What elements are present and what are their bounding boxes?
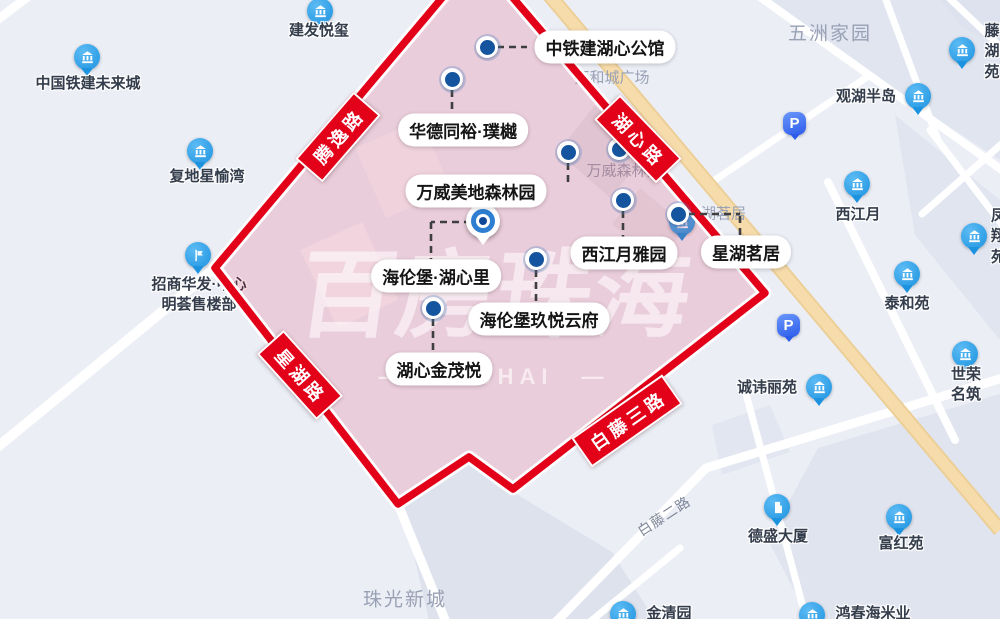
estate-label-6[interactable]: 海伦堡·湖心里 (371, 260, 501, 293)
estate-label-7[interactable]: 海伦堡玖悦云府 (469, 303, 610, 336)
estate-dot-2[interactable] (439, 66, 466, 93)
estate-dot-3[interactable] (555, 139, 582, 166)
estate-label-2[interactable]: 华德同裕·璞樾 (398, 114, 528, 147)
map-canvas[interactable]: 百房珠海 — ZHUHAI — 五洲家园珠光新城万和城广场万威森林园星湖茗居白藤… (0, 0, 1000, 619)
estate-dot-4[interactable] (610, 187, 637, 214)
estate-label-8[interactable]: 湖心金茂悦 (386, 353, 493, 386)
estate-dot-6[interactable] (523, 246, 550, 273)
selected-estate-marker[interactable] (466, 204, 500, 238)
estate-dot-7[interactable] (420, 295, 447, 322)
estate-label-4[interactable]: 西江月雅园 (571, 237, 678, 270)
estate-label-1[interactable]: 中铁建湖心公馆 (535, 31, 676, 64)
estate-dot-1[interactable] (474, 34, 501, 61)
estate-dot-5[interactable] (665, 201, 692, 228)
estate-label-5[interactable]: 星湖茗居 (701, 236, 791, 269)
estate-label-3[interactable]: 万威美地森林园 (406, 175, 547, 208)
